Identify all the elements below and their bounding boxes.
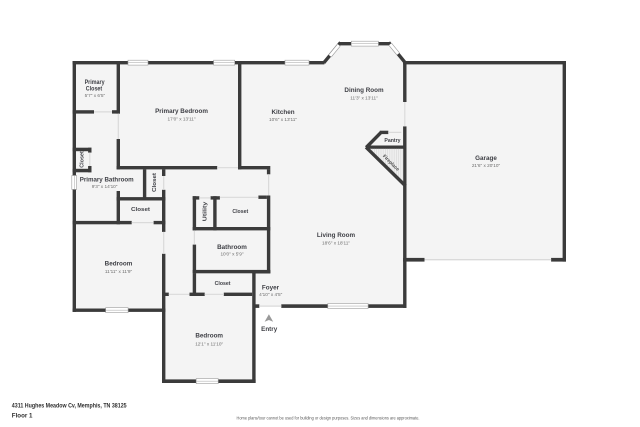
svg-text:5'7" x 6'5": 5'7" x 6'5": [85, 93, 106, 98]
svg-text:11'3" x 13'11": 11'3" x 13'11": [350, 96, 378, 101]
svg-text:10'0" x 5'9": 10'0" x 5'9": [220, 252, 243, 257]
svg-text:Garage: Garage: [475, 155, 497, 162]
svg-text:12'1" x 11'10": 12'1" x 11'10": [195, 342, 223, 347]
svg-text:18'6" x 18'11": 18'6" x 18'11": [322, 241, 350, 246]
svg-text:Primary Bedroom: Primary Bedroom: [155, 108, 208, 115]
svg-text:17'0" x 13'11": 17'0" x 13'11": [168, 117, 196, 122]
svg-text:Bedroom: Bedroom: [195, 333, 223, 340]
svg-text:Utility: Utility: [202, 202, 208, 222]
svg-text:Closet: Closet: [232, 209, 248, 215]
svg-text:11'11" x 11'9": 11'11" x 11'9": [105, 269, 133, 274]
svg-text:Entry: Entry: [261, 326, 278, 333]
svg-text:Bedroom: Bedroom: [105, 261, 133, 268]
svg-text:Dining Room: Dining Room: [344, 87, 384, 94]
svg-text:Closet: Closet: [215, 281, 231, 287]
svg-text:9'3" x 14'10": 9'3" x 14'10": [92, 184, 118, 189]
svg-text:Kitchen: Kitchen: [271, 109, 294, 116]
svg-text:10'6" x 13'11": 10'6" x 13'11": [269, 117, 297, 122]
svg-text:Pantry: Pantry: [384, 138, 400, 144]
svg-text:21'6" x 20'10": 21'6" x 20'10": [472, 163, 501, 168]
svg-text:4'10" x 4'5": 4'10" x 4'5": [259, 292, 282, 297]
svg-text:Floor 1: Floor 1: [12, 412, 33, 419]
svg-text:Closet: Closet: [152, 173, 158, 192]
svg-text:Living Room: Living Room: [317, 232, 356, 239]
svg-text:Foyer: Foyer: [262, 284, 280, 291]
svg-text:Primary Bathroom: Primary Bathroom: [80, 176, 134, 183]
svg-text:Closet: Closet: [86, 86, 103, 93]
svg-text:Closet: Closet: [131, 207, 150, 213]
svg-text:Bathroom: Bathroom: [217, 244, 247, 251]
svg-text:4311 Hughes Meadow Cv, Memphis: 4311 Hughes Meadow Cv, Memphis, TN 38125: [12, 403, 127, 409]
svg-text:Closet: Closet: [80, 151, 86, 168]
svg-text:Home plans/tour cannot be used: Home plans/tour cannot be used for build…: [237, 415, 420, 420]
